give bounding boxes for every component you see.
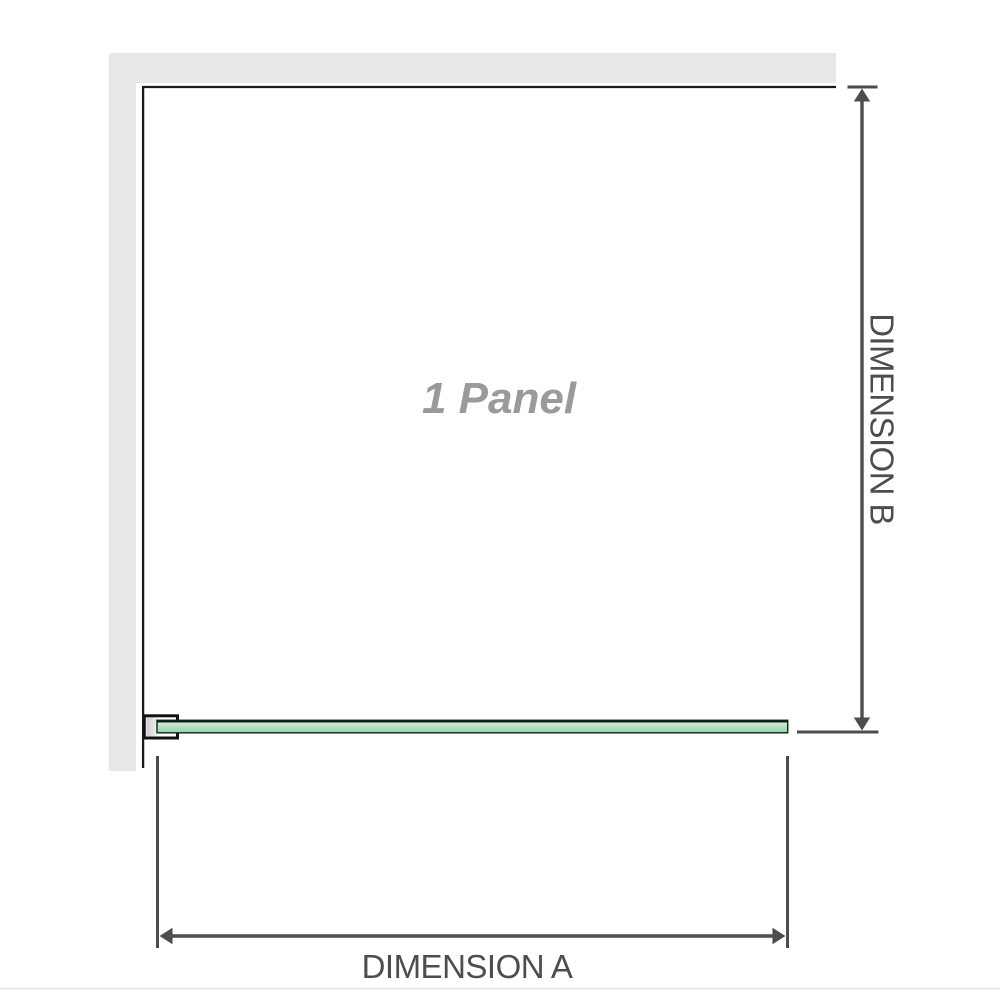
svg-text:DIMENSION A: DIMENSION A [362,948,573,985]
svg-text:DIMENSION B: DIMENSION B [864,313,901,525]
svg-text:1 Panel: 1 Panel [422,374,577,423]
